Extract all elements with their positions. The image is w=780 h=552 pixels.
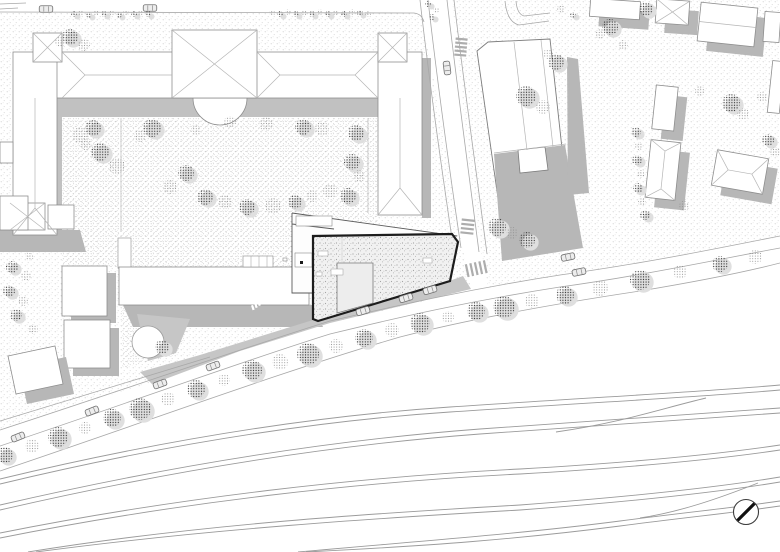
tree: [191, 125, 201, 135]
tree: [78, 10, 84, 16]
tree: [269, 10, 275, 16]
tree: [155, 340, 169, 354]
annex-room: [295, 253, 312, 267]
tree: [618, 40, 628, 50]
tree: [722, 94, 740, 112]
tree: [344, 154, 360, 170]
tree: [325, 11, 331, 17]
north-arrow-icon: [734, 500, 759, 525]
tree: [78, 39, 90, 51]
car: [443, 61, 451, 75]
tree: [272, 354, 288, 370]
tree: [25, 253, 33, 261]
tree: [429, 14, 435, 20]
tree: [355, 329, 373, 347]
building: [763, 11, 780, 42]
path-strip: [118, 238, 131, 268]
tree: [163, 180, 177, 194]
tree: [293, 11, 299, 17]
tree: [348, 125, 364, 141]
tree: [285, 9, 291, 15]
tree: [25, 439, 39, 453]
tree: [21, 271, 31, 281]
tree: [6, 261, 18, 273]
tree: [349, 9, 355, 15]
building: [64, 320, 110, 368]
roof-detail: [316, 272, 322, 276]
roof-detail: [318, 251, 328, 256]
tree: [178, 165, 194, 181]
annex-room: [243, 256, 273, 267]
tree: [134, 130, 146, 142]
tree: [323, 184, 337, 198]
tree: [637, 170, 645, 178]
tree: [48, 427, 68, 447]
annex-south-a: [48, 205, 74, 229]
tree: [103, 409, 121, 427]
tree: [638, 198, 646, 206]
tree: [138, 10, 144, 16]
tree: [93, 10, 99, 16]
building: [655, 0, 690, 25]
tree: [557, 5, 565, 13]
tree: [109, 158, 125, 174]
site-plan: [0, 0, 780, 552]
tree: [79, 422, 91, 434]
tree: [762, 134, 774, 146]
tree: [71, 11, 77, 17]
tree: [317, 9, 323, 15]
building: [589, 0, 640, 20]
tree: [556, 286, 574, 304]
tree: [129, 398, 151, 420]
tree: [353, 170, 365, 182]
building: [697, 2, 758, 47]
tree: [306, 190, 318, 202]
tree: [506, 227, 518, 239]
roof-detail: [331, 269, 343, 275]
tree: [259, 117, 273, 131]
tree: [433, 7, 439, 13]
tree: [679, 201, 689, 211]
tree: [640, 210, 650, 220]
annex-room: [296, 216, 332, 226]
depot-annex: [518, 147, 548, 173]
tree: [329, 339, 343, 353]
tree: [543, 49, 553, 59]
tree: [748, 250, 762, 264]
bar-building: [119, 267, 309, 305]
tree: [757, 92, 767, 102]
tree: [519, 232, 535, 248]
tree: [712, 256, 728, 272]
tree: [297, 343, 319, 365]
building: [645, 140, 681, 201]
tree: [101, 11, 107, 17]
tree: [592, 280, 608, 296]
annex-room: [283, 258, 287, 261]
building: [652, 85, 678, 131]
tree: [673, 265, 687, 279]
tree: [91, 143, 109, 161]
tree: [635, 142, 643, 150]
tree: [108, 10, 114, 16]
tree: [86, 12, 92, 18]
tree: [385, 323, 399, 337]
tree: [55, 37, 65, 47]
tree: [570, 12, 576, 18]
tree: [197, 189, 213, 205]
tree: [631, 127, 641, 137]
tree: [488, 218, 506, 236]
annex-mark: [300, 261, 303, 264]
tree: [145, 11, 151, 17]
tree: [639, 2, 653, 16]
tree: [239, 199, 255, 215]
tree: [442, 311, 454, 323]
tree: [161, 392, 175, 406]
tree: [187, 380, 205, 398]
tree: [10, 309, 22, 321]
tree: [516, 86, 536, 106]
tree: [737, 108, 749, 120]
car: [39, 6, 53, 13]
tree: [357, 10, 363, 16]
tree: [242, 360, 262, 380]
tree: [265, 198, 281, 214]
tree: [224, 116, 236, 128]
tree: [295, 119, 311, 135]
tree: [630, 270, 650, 290]
building: [62, 266, 107, 316]
tree: [288, 195, 302, 209]
tree: [695, 86, 705, 96]
annex-south-b: [0, 196, 28, 230]
tree: [218, 195, 232, 209]
tree: [333, 10, 339, 16]
tree: [425, 1, 431, 7]
building-shadow: [422, 58, 431, 218]
car: [143, 5, 157, 12]
tree: [277, 11, 283, 17]
tree: [632, 155, 642, 165]
tree: [301, 10, 307, 16]
tree: [341, 11, 347, 17]
tree: [80, 138, 92, 150]
tree: [116, 12, 122, 18]
tree: [315, 122, 329, 136]
tree: [493, 296, 515, 318]
tree: [18, 296, 28, 306]
tree: [218, 374, 230, 386]
tree: [123, 10, 129, 16]
tree: [770, 147, 780, 157]
tree: [467, 302, 485, 320]
tree: [131, 11, 137, 17]
tree: [410, 313, 430, 333]
tree: [3, 285, 15, 297]
tree: [309, 11, 315, 17]
tree: [365, 11, 371, 17]
tree: [633, 183, 643, 193]
tree: [536, 100, 550, 114]
site-plan-map: [0, 0, 780, 552]
tree: [85, 120, 101, 136]
tree: [595, 29, 605, 39]
roof-detail: [423, 258, 432, 263]
tree: [340, 188, 356, 204]
left-notch: [0, 142, 13, 163]
tree: [525, 294, 539, 308]
tree: [28, 324, 38, 334]
